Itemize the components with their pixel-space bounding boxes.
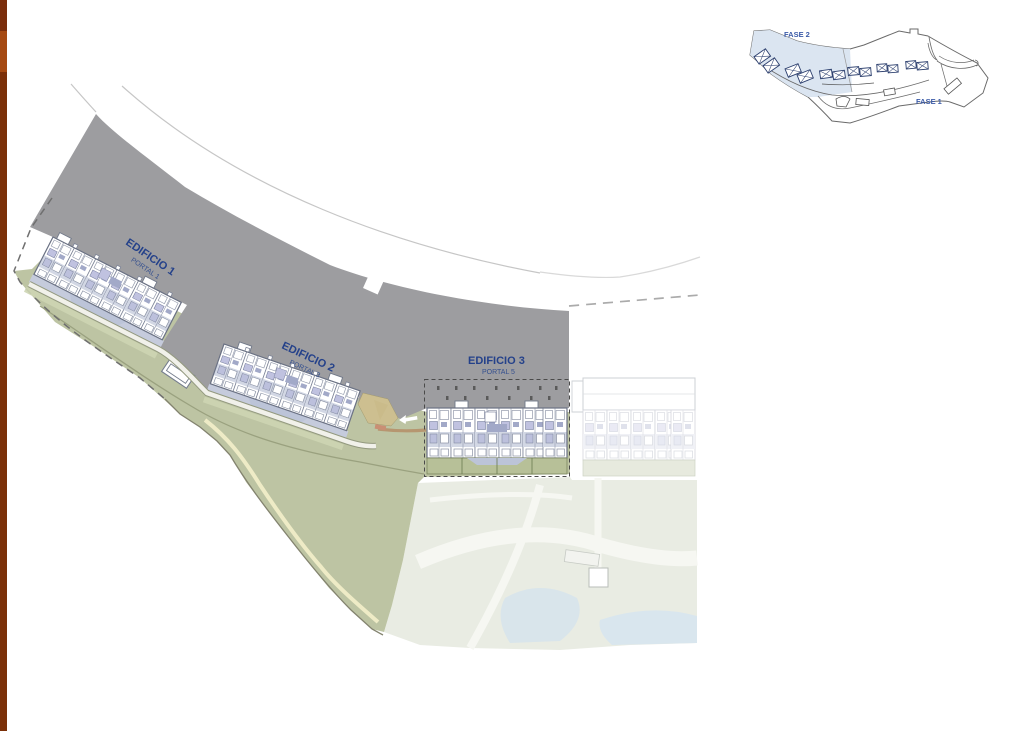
- svg-text:FASE 1: FASE 1: [916, 97, 942, 106]
- svg-text:PORTAL 5: PORTAL 5: [482, 369, 515, 376]
- svg-text:EDIFICIO 3: EDIFICIO 3: [468, 355, 525, 367]
- svg-text:FASE 2: FASE 2: [784, 30, 810, 39]
